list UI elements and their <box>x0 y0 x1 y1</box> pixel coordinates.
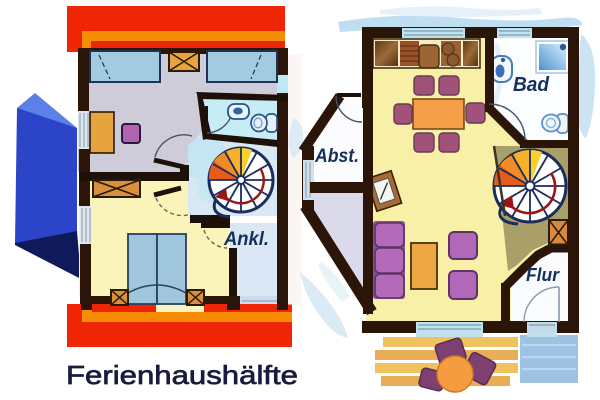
svg-text:Flur: Flur <box>526 265 560 285</box>
svg-text:Ankl.: Ankl. <box>223 229 269 250</box>
svg-text:Bad: Bad <box>513 74 550 96</box>
svg-text:Ferienhaushälfte: Ferienhaushälfte <box>66 360 298 390</box>
svg-text:Abst.: Abst. <box>314 146 359 167</box>
